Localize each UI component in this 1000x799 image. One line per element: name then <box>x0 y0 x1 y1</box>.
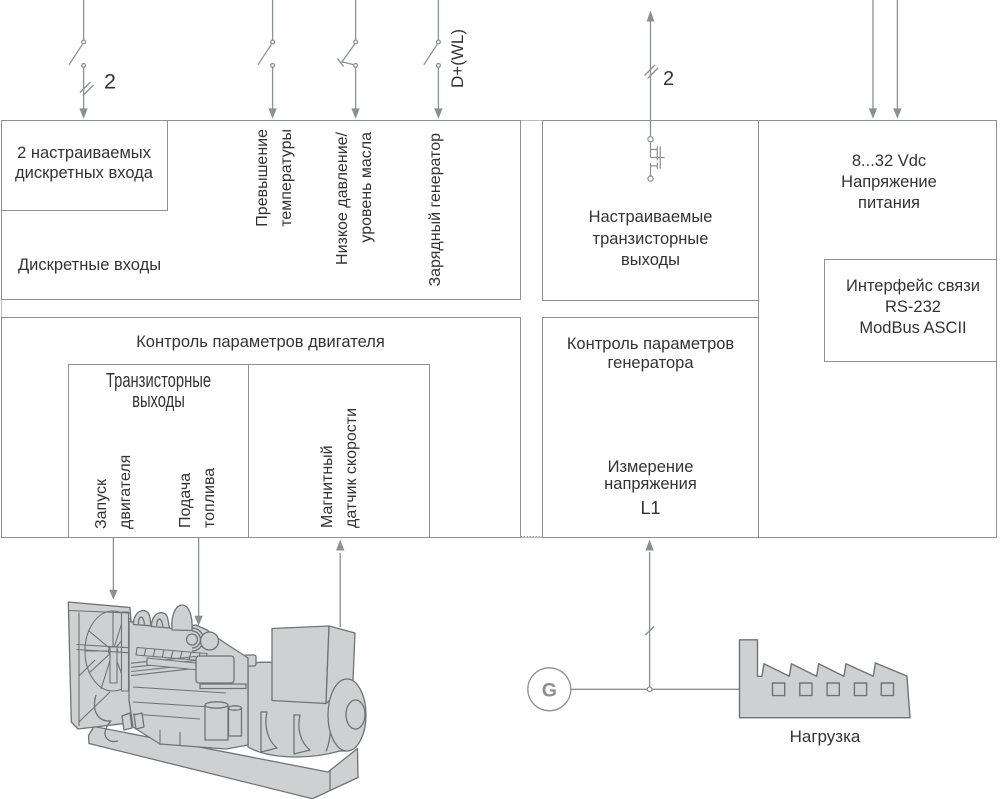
svg-text:2: 2 <box>104 70 116 94</box>
svg-text:2: 2 <box>663 68 674 90</box>
svg-text:G: G <box>542 680 557 702</box>
